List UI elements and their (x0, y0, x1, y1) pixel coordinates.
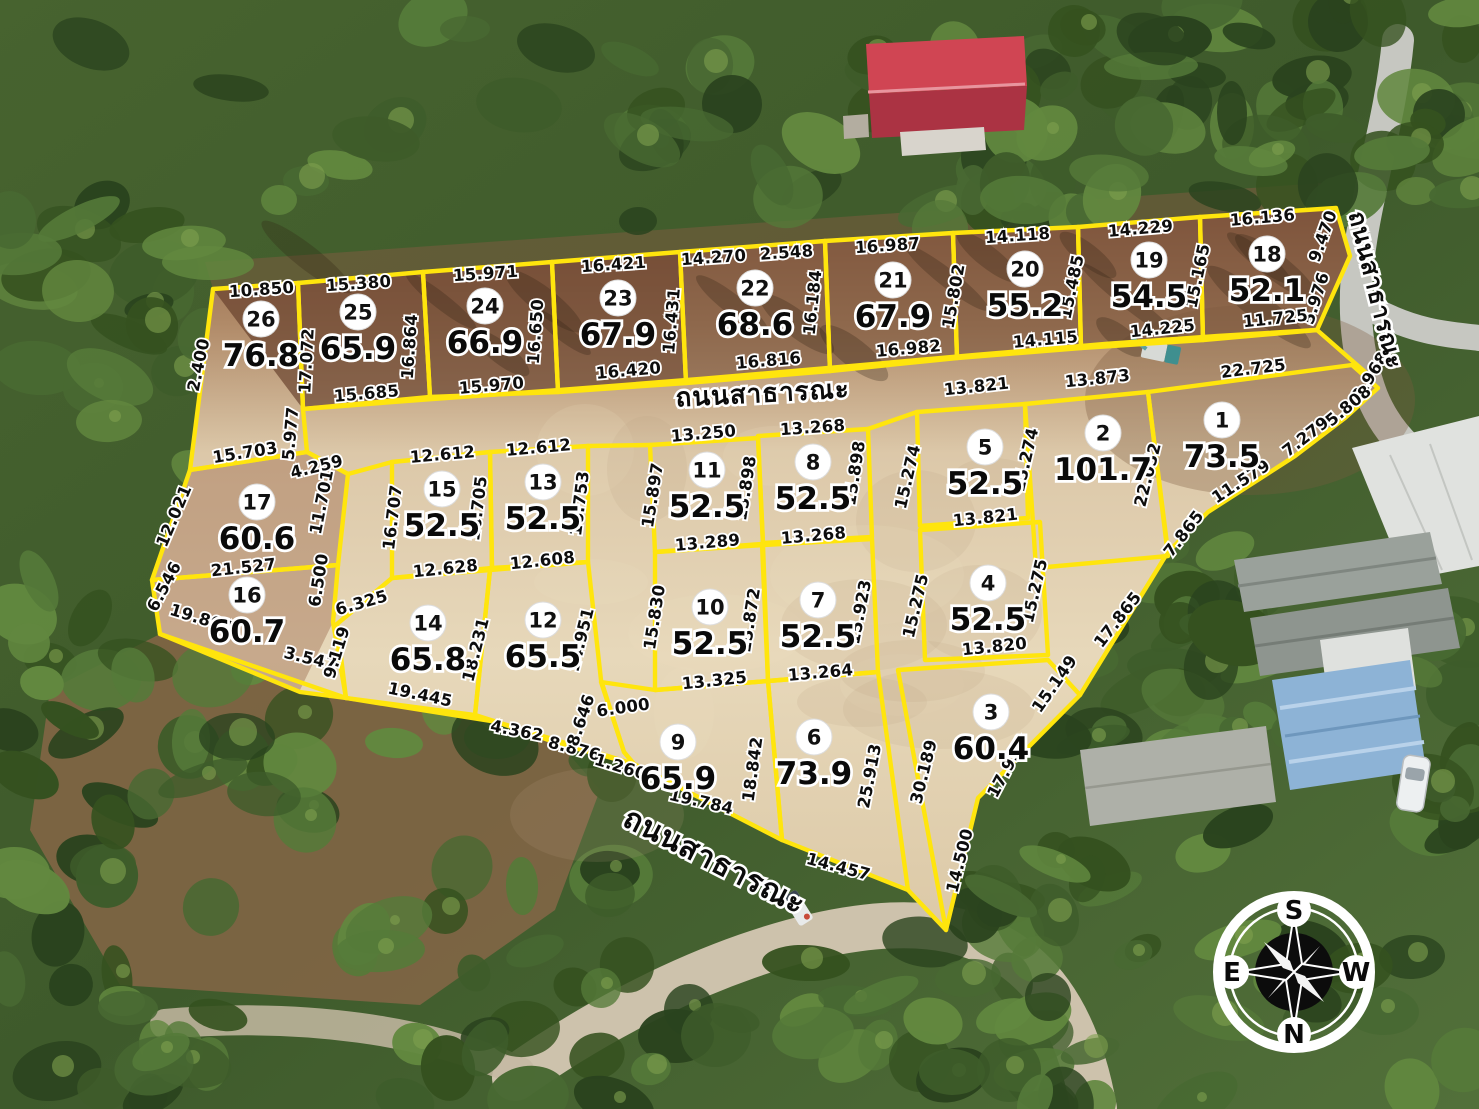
tree-highlight (390, 915, 400, 925)
plot-area-label: 52.5 (947, 466, 1024, 502)
plot-area-label: 101.7 (1054, 452, 1152, 488)
compass-letter-right: W (1342, 958, 1371, 988)
plot-area-label: 52.5 (672, 626, 749, 662)
tree-highlight (1306, 60, 1330, 84)
plot-area-label: 52.5 (404, 508, 481, 544)
tree-highlight (1047, 122, 1059, 134)
plot-number: 22 (740, 277, 769, 301)
tree-highlight (1272, 143, 1284, 155)
tree-highlight (614, 1091, 626, 1103)
plot-number: 16 (232, 584, 261, 608)
plot-area-label: 54.5 (1111, 279, 1188, 315)
tree-highlight (49, 649, 63, 663)
compass-letter-bottom: N (1283, 1020, 1305, 1050)
tree-highlight (181, 229, 199, 247)
tree-highlight (100, 858, 126, 884)
tree-highlight (202, 766, 216, 780)
plot-area-label: 52.5 (505, 501, 582, 537)
subdivision-map-canvas: 10.8502.40015.7035.9774.25915.38017.0721… (0, 0, 1479, 1109)
tree-highlight (801, 947, 823, 969)
plot-number: 19 (1134, 249, 1163, 273)
plot-number: 8 (806, 451, 821, 475)
plot-number: 1 (1215, 409, 1230, 433)
plot-area-label: 60.7 (209, 614, 286, 650)
tree-highlight (161, 1041, 173, 1053)
plot-area-label: 73.9 (776, 756, 853, 792)
plot-number: 15 (427, 478, 456, 502)
plot-number: 24 (470, 295, 499, 319)
plot-number: 9 (671, 731, 686, 755)
plot-number: 26 (246, 308, 275, 332)
plot-number: 21 (878, 269, 907, 293)
boundary-segment (588, 445, 650, 446)
compass-letter-left: E (1223, 958, 1241, 988)
tree-highlight (116, 964, 130, 978)
plot-area-label: 52.5 (950, 602, 1027, 638)
tree-highlight (1084, 1034, 1108, 1058)
tree-highlight (1081, 14, 1097, 30)
plot-number: 14 (413, 612, 442, 636)
tree-highlight (229, 718, 257, 746)
plot-number: 23 (603, 287, 632, 311)
tree-highlight (298, 705, 312, 719)
plot-number: 11 (692, 459, 721, 483)
plot-number: 12 (528, 609, 557, 633)
dimension-label: 2.548 (759, 241, 814, 264)
tree-highlight (962, 961, 986, 985)
tree-highlight (601, 977, 613, 989)
plot-area-label: 55.2 (987, 288, 1064, 324)
plot-area-label: 65.9 (640, 761, 717, 797)
compass-letter-top: S (1285, 896, 1304, 926)
tree-highlight (1381, 999, 1395, 1013)
plot-area-label: 68.6 (717, 307, 794, 343)
tree-highlight (442, 897, 460, 915)
plot-number: 18 (1252, 243, 1281, 267)
plot-area-label: 67.9 (580, 317, 657, 353)
plot-number: 25 (343, 301, 372, 325)
plot-number: 7 (811, 589, 826, 613)
plot-area-label: 73.5 (1184, 439, 1261, 475)
tree-highlight (875, 1031, 893, 1049)
tree-highlight (299, 163, 325, 189)
tree-highlight (378, 938, 394, 954)
compass-rose: S N E W (1215, 893, 1373, 1051)
plot-area-label: 52.5 (775, 481, 852, 517)
tree-highlight (1431, 769, 1455, 793)
plot-number: 17 (242, 491, 271, 515)
tree-highlight (145, 307, 171, 333)
plot-number: 4 (981, 572, 996, 596)
tree-highlight (1048, 898, 1072, 922)
plot-number: 2 (1096, 422, 1111, 446)
aerial-plat-map: 10.8502.40015.7035.9774.25915.38017.0721… (0, 0, 1479, 1109)
tree-highlight (1408, 942, 1428, 962)
plot-area-label: 60.4 (953, 731, 1030, 767)
tree-highlight (52, 1055, 74, 1077)
tree-highlight (1197, 1092, 1207, 1102)
tree-highlight (704, 49, 728, 73)
plot-area-label: 66.9 (447, 325, 524, 361)
tree-highlight (637, 124, 659, 146)
tree-highlight (1006, 1056, 1024, 1074)
plot-number: 3 (984, 701, 999, 725)
plot-area-label: 67.9 (855, 299, 932, 335)
tree-highlight (1056, 854, 1066, 864)
tree-highlight (1133, 944, 1145, 956)
tree-highlight (647, 1054, 667, 1074)
plot-area-label: 65.9 (320, 331, 397, 367)
plot-number: 6 (807, 726, 822, 750)
plot-number: 13 (528, 471, 557, 495)
plot-area-label: 76.8 (223, 338, 300, 374)
plot-area-label: 52.1 (1229, 273, 1306, 309)
plot-area-label: 65.8 (390, 642, 467, 678)
plot-number: 20 (1010, 258, 1039, 282)
plot-number: 5 (978, 436, 993, 460)
plot-area-label: 65.5 (505, 639, 582, 675)
plot-area-label: 52.5 (669, 489, 746, 525)
tree-highlight (610, 860, 622, 872)
tree-highlight (305, 809, 317, 821)
plot-number: 10 (695, 596, 724, 620)
tree-highlight (1092, 728, 1106, 742)
tree-highlight (109, 410, 121, 422)
plot-area-label: 60.6 (219, 521, 296, 557)
plot-area-label: 52.5 (780, 619, 857, 655)
